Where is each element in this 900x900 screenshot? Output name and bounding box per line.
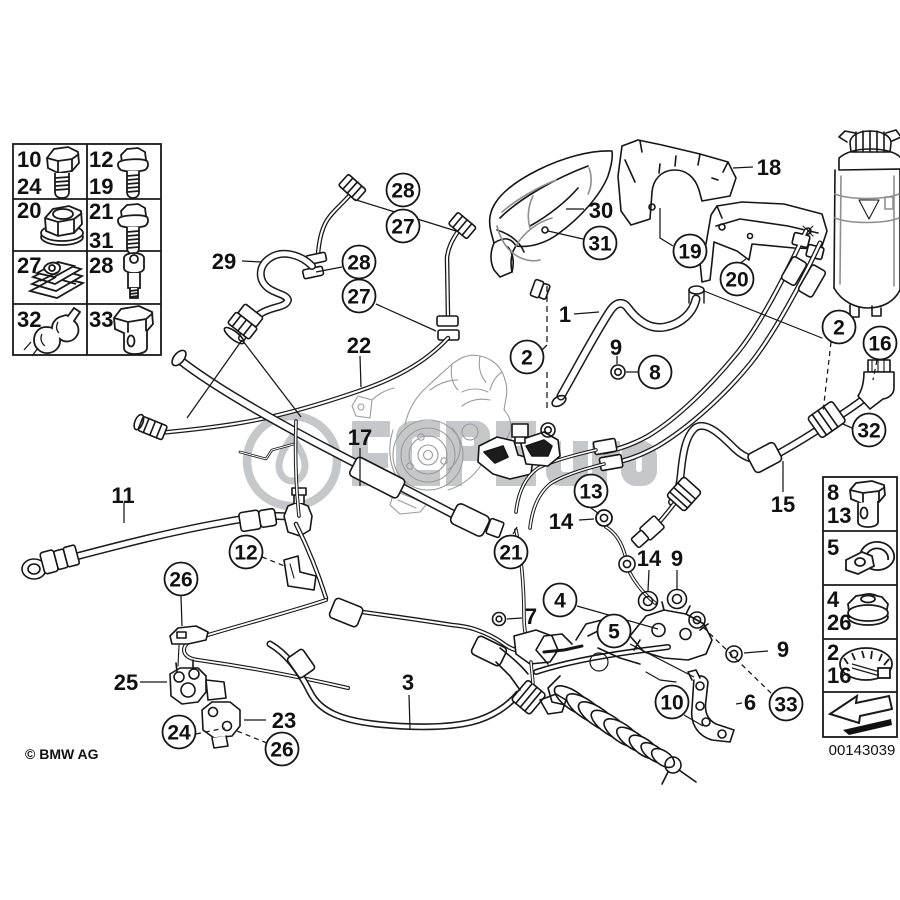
svg-text:19: 19 <box>678 241 701 264</box>
svg-text:10: 10 <box>660 692 683 715</box>
svg-text:16: 16 <box>827 663 851 688</box>
svg-text:32: 32 <box>17 307 41 332</box>
svg-text:20: 20 <box>725 269 748 292</box>
svg-text:26: 26 <box>169 569 192 592</box>
svg-text:27: 27 <box>347 286 370 309</box>
svg-text:26: 26 <box>270 739 293 762</box>
svg-text:12: 12 <box>234 542 257 565</box>
svg-text:32: 32 <box>857 420 880 443</box>
svg-text:33: 33 <box>774 694 797 717</box>
svg-text:19: 19 <box>89 174 113 199</box>
svg-text:21: 21 <box>499 542 523 565</box>
svg-text:2: 2 <box>827 640 839 665</box>
svg-text:1: 1 <box>559 302 571 327</box>
svg-text:9: 9 <box>610 335 622 360</box>
svg-text:28: 28 <box>89 253 113 278</box>
svg-text:10: 10 <box>17 147 41 172</box>
svg-text:27: 27 <box>391 216 414 239</box>
svg-text:11: 11 <box>111 483 134 508</box>
svg-text:16: 16 <box>868 333 891 356</box>
svg-text:22: 22 <box>347 333 371 358</box>
svg-text:7: 7 <box>525 604 537 629</box>
svg-text:17: 17 <box>348 425 372 450</box>
svg-text:15: 15 <box>771 492 795 517</box>
svg-text:26: 26 <box>827 610 851 635</box>
svg-text:13: 13 <box>827 503 851 528</box>
svg-text:30: 30 <box>589 198 613 223</box>
svg-text:4: 4 <box>827 587 840 612</box>
svg-text:00143039: 00143039 <box>829 742 896 759</box>
svg-text:8: 8 <box>649 362 661 385</box>
svg-text:8: 8 <box>827 480 839 505</box>
svg-text:31: 31 <box>89 228 113 253</box>
svg-text:31: 31 <box>588 233 612 256</box>
svg-text:6: 6 <box>744 690 756 715</box>
svg-text:28: 28 <box>347 252 371 275</box>
svg-text:3: 3 <box>402 670 414 695</box>
svg-text:14: 14 <box>549 509 574 534</box>
svg-text:23: 23 <box>272 708 296 733</box>
svg-text:14: 14 <box>637 546 662 571</box>
svg-text:5: 5 <box>608 621 620 644</box>
svg-text:24: 24 <box>167 722 191 745</box>
svg-text:2: 2 <box>833 317 845 340</box>
svg-text:28: 28 <box>391 180 415 203</box>
svg-text:33: 33 <box>89 307 113 332</box>
svg-text:13: 13 <box>579 481 602 504</box>
svg-text:29: 29 <box>212 249 236 274</box>
svg-text:9: 9 <box>671 546 683 571</box>
svg-text:9: 9 <box>777 637 789 662</box>
svg-text:5: 5 <box>827 535 839 560</box>
svg-text:12: 12 <box>89 147 113 172</box>
svg-text:2: 2 <box>521 347 533 370</box>
svg-text:© BMW AG: © BMW AG <box>25 746 99 762</box>
svg-text:18: 18 <box>757 155 781 180</box>
svg-text:20: 20 <box>17 198 41 223</box>
svg-text:24: 24 <box>17 174 42 199</box>
svg-text:25: 25 <box>114 670 138 695</box>
svg-text:4: 4 <box>554 590 566 613</box>
svg-text:27: 27 <box>17 253 41 278</box>
svg-text:21: 21 <box>89 199 113 224</box>
